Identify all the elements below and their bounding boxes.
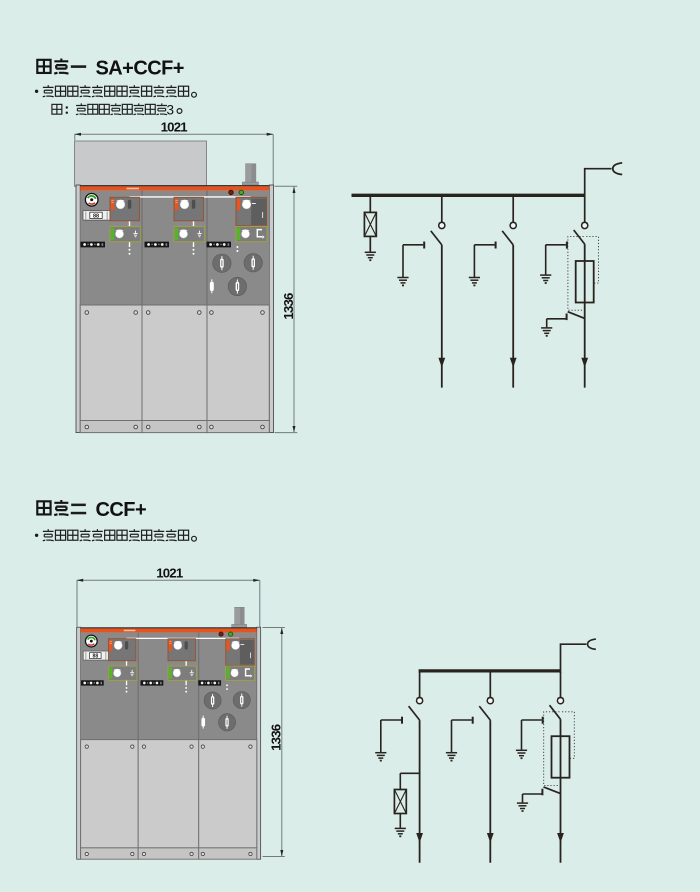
svg-text:3: 3 bbox=[167, 102, 175, 117]
svg-text:1021: 1021 bbox=[156, 565, 183, 580]
svg-text:SA+CCF+: SA+CCF+ bbox=[96, 58, 184, 80]
svg-text:1336: 1336 bbox=[268, 724, 283, 751]
svg-text:CCF+: CCF+ bbox=[96, 499, 147, 521]
svg-text:1336: 1336 bbox=[281, 293, 296, 320]
svg-text:1021: 1021 bbox=[161, 120, 188, 135]
